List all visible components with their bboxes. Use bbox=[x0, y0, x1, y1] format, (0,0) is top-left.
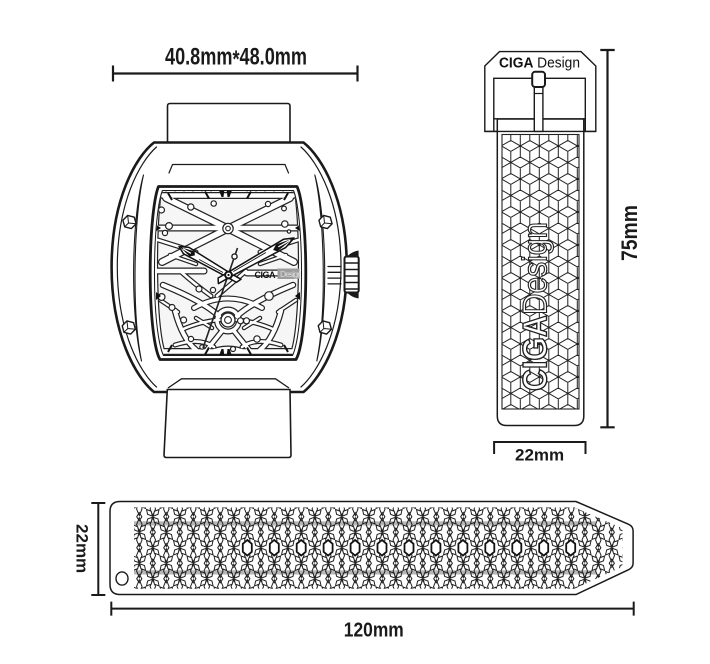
svg-text:22mm: 22mm bbox=[73, 524, 92, 573]
svg-text:22mm: 22mm bbox=[515, 446, 564, 465]
svg-text:120mm: 120mm bbox=[344, 619, 404, 642]
svg-text:Design: Design bbox=[517, 222, 555, 315]
svg-text:CIGA: CIGA bbox=[255, 270, 277, 280]
svg-text:40.8mm*48.0mm: 40.8mm*48.0mm bbox=[165, 44, 307, 74]
svg-text:CIGA: CIGA bbox=[517, 315, 555, 391]
svg-text:CIGA Design: CIGA Design bbox=[499, 56, 580, 72]
svg-text:75mm: 75mm bbox=[617, 205, 642, 261]
svg-text:Design: Design bbox=[280, 269, 302, 279]
